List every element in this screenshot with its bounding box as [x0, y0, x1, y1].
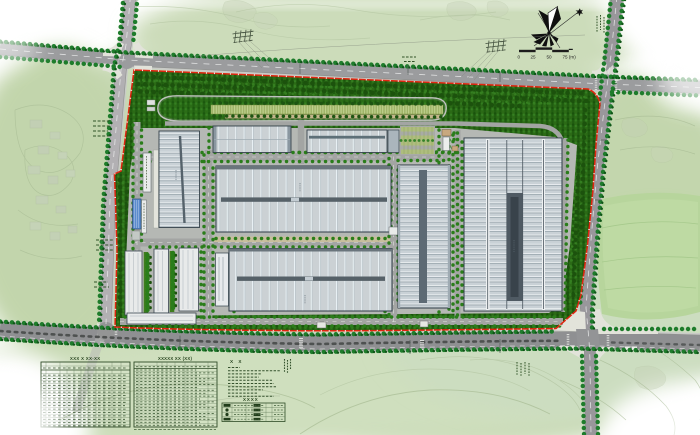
svg-text:XXX X XX-XX: XXX X XX-XX	[70, 356, 100, 361]
svg-text:XXXXX XX (XX): XXXXX XX (XX)	[158, 356, 192, 361]
svg-text:0: 0	[518, 55, 521, 60]
svg-text:XXXX: XXXX	[243, 397, 259, 402]
svg-text:75 (m): 75 (m)	[563, 55, 577, 60]
svg-text:50: 50	[547, 55, 553, 60]
svg-text:25: 25	[531, 55, 537, 60]
svg-text:X X: X X	[230, 359, 243, 364]
